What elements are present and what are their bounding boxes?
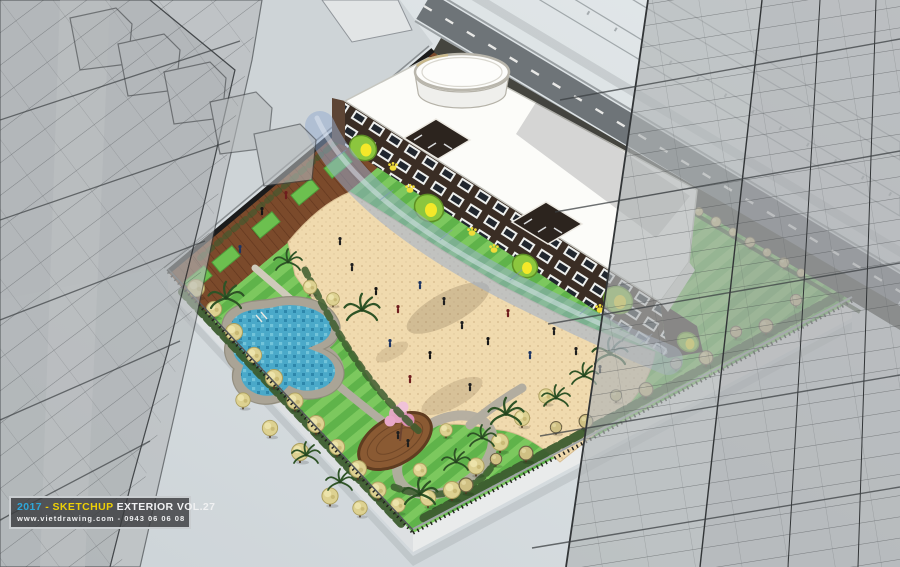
watermark-year: 2017 — [17, 501, 42, 513]
paw-toe — [489, 245, 492, 248]
paw-toe — [595, 305, 598, 308]
watermark-separator: - — [45, 501, 49, 513]
watermark-line1: 2017 - SKETCHUP EXTERIOR VOL.27 — [17, 501, 183, 513]
watermark-phone: 0943 06 06 08 — [124, 514, 185, 523]
drum-tower — [415, 54, 509, 108]
paw-toe — [493, 244, 496, 247]
paw-toe — [388, 163, 391, 166]
sketchup-render: 2017 - SKETCHUP EXTERIOR VOL.27 www.viet… — [0, 0, 900, 567]
watermark-separator2: - — [118, 514, 122, 523]
paw-toe — [599, 304, 602, 307]
paw-pad — [491, 247, 498, 253]
watermark-line2: www.vietdrawing.com - 0943 06 06 08 — [17, 515, 183, 523]
paw-toe — [392, 162, 395, 165]
paw-toe — [395, 163, 398, 166]
paw-toe — [471, 227, 474, 230]
scene-canvas — [0, 0, 900, 567]
paw-toe — [412, 185, 415, 188]
pool-water — [226, 301, 340, 401]
watermark-series: EXTERIOR VOL.27 — [117, 501, 216, 513]
paw-toe — [496, 245, 499, 248]
paw-toe — [409, 184, 412, 187]
paw-toe — [467, 228, 470, 231]
watermark-badge: 2017 - SKETCHUP EXTERIOR VOL.27 www.viet… — [9, 496, 191, 529]
paw-pad — [407, 187, 414, 193]
watermark-website: www.vietdrawing.com — [17, 514, 115, 523]
paw-toe — [474, 228, 477, 231]
paw-pad — [469, 230, 476, 236]
paw-toe — [405, 185, 408, 188]
paw-pad — [390, 165, 397, 171]
watermark-brand: SKETCHUP — [53, 501, 114, 513]
